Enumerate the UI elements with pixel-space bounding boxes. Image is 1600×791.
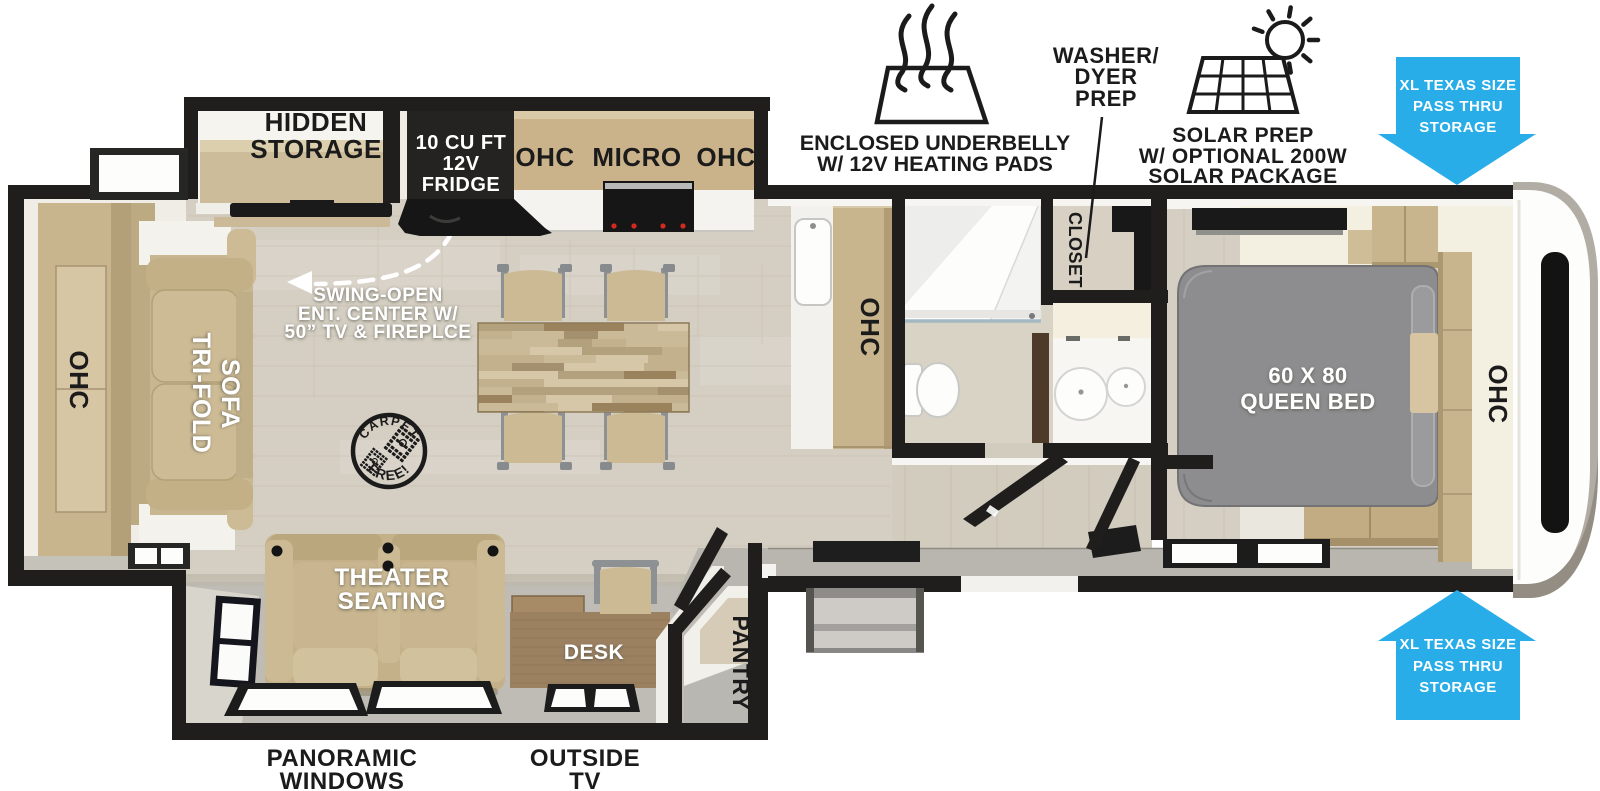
svg-text:W/ 12V HEATING PADS: W/ 12V HEATING PADS bbox=[817, 152, 1053, 176]
svg-text:HIDDEN: HIDDEN bbox=[265, 107, 368, 137]
svg-text:FRIDGE: FRIDGE bbox=[422, 174, 501, 196]
svg-text:PANTRY: PANTRY bbox=[728, 616, 754, 711]
svg-text:STORAGE: STORAGE bbox=[1419, 679, 1496, 696]
svg-text:CLOSET: CLOSET bbox=[1065, 212, 1085, 288]
svg-text:12V: 12V bbox=[442, 153, 479, 175]
svg-text:SWING-OPEN: SWING-OPEN bbox=[313, 285, 443, 306]
svg-text:PREP: PREP bbox=[1075, 86, 1137, 111]
svg-text:SOFA: SOFA bbox=[216, 359, 244, 429]
svg-text:OHC: OHC bbox=[855, 297, 885, 356]
svg-text:60 X 80: 60 X 80 bbox=[1268, 363, 1347, 388]
svg-text:STORAGE: STORAGE bbox=[250, 134, 382, 164]
svg-text:QUEEN BED: QUEEN BED bbox=[1240, 389, 1375, 414]
svg-text:THEATER: THEATER bbox=[334, 564, 449, 591]
svg-text:XL TEXAS SIZE: XL TEXAS SIZE bbox=[1399, 77, 1516, 94]
svg-text:DESK: DESK bbox=[564, 641, 624, 664]
svg-text:STORAGE: STORAGE bbox=[1419, 119, 1496, 136]
svg-text:SOLAR PREP: SOLAR PREP bbox=[1172, 124, 1314, 147]
svg-text:OHC: OHC bbox=[515, 142, 574, 172]
svg-text:OHC: OHC bbox=[1483, 364, 1513, 423]
svg-text:10 CU FT: 10 CU FT bbox=[416, 132, 507, 154]
svg-text:XL TEXAS SIZE: XL TEXAS SIZE bbox=[1399, 636, 1516, 653]
svg-text:MICRO: MICRO bbox=[592, 142, 681, 172]
svg-text:SOLAR PACKAGE: SOLAR PACKAGE bbox=[1148, 165, 1337, 188]
svg-text:PASS THRU: PASS THRU bbox=[1413, 98, 1503, 115]
svg-text:50” TV & FIREPLCE: 50” TV & FIREPLCE bbox=[285, 322, 472, 343]
svg-text:OHC: OHC bbox=[64, 350, 94, 409]
svg-text:PASS THRU: PASS THRU bbox=[1413, 658, 1503, 675]
svg-text:OHC: OHC bbox=[696, 142, 755, 172]
svg-text:TRI-FOLD: TRI-FOLD bbox=[187, 333, 215, 454]
svg-text:TV: TV bbox=[569, 768, 601, 791]
svg-text:SEATING: SEATING bbox=[338, 588, 446, 615]
svg-text:WINDOWS: WINDOWS bbox=[280, 768, 405, 791]
